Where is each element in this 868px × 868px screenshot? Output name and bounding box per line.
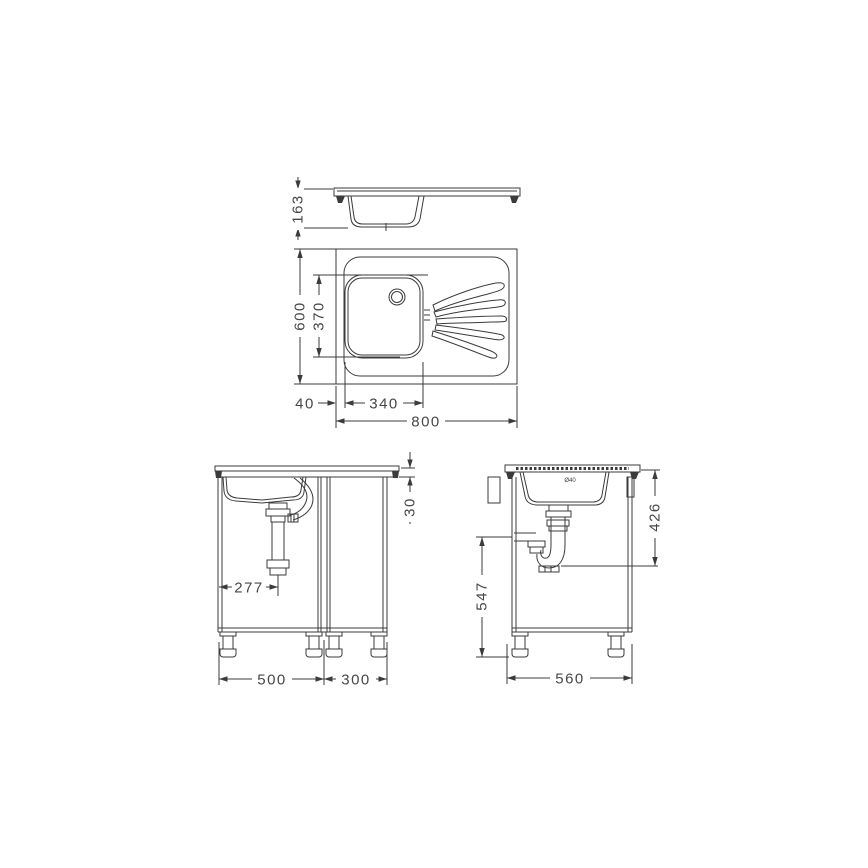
bowl-section-outer <box>223 477 306 503</box>
arrowhead <box>652 470 657 479</box>
drain-body <box>271 516 285 522</box>
dim-outlet-height: 547 <box>473 537 512 657</box>
dim-label-40: 40 <box>295 395 315 412</box>
dim-cabinet-widths: 500 300 <box>219 640 387 688</box>
dim-lines <box>318 362 345 428</box>
dim-label-300: 300 <box>341 671 371 688</box>
elbow-nut <box>528 541 545 547</box>
dim-worktop-edge: 30 <box>399 452 418 524</box>
bowl-inner <box>348 278 420 355</box>
dim-label-800: 800 <box>411 413 441 430</box>
waste-arm <box>514 533 536 541</box>
dim-bowl-depth: 370 <box>310 275 428 357</box>
dim-label-277: 277 <box>234 579 264 596</box>
profile-view: 163 <box>289 177 520 240</box>
arrowhead <box>316 676 325 681</box>
sink-rim-profile <box>334 188 520 196</box>
arrowhead <box>316 275 321 284</box>
cabinet-walls <box>218 477 387 632</box>
cabinet-walls <box>512 477 632 632</box>
adjustable-foot <box>608 632 624 657</box>
adjustable-foot <box>306 632 322 657</box>
bowl-profile-inner <box>351 196 419 224</box>
dim-label-600: 600 <box>291 301 308 331</box>
bowl-section-outer <box>520 472 609 505</box>
bowl-mark-label: Ø40 <box>564 478 576 484</box>
front-view: 277 30 500 300 <box>215 452 418 688</box>
arrowhead <box>328 400 337 405</box>
rim-clip-right <box>510 196 519 203</box>
drawing-canvas: 163 600 <box>0 0 868 868</box>
dim-drain-offset: 277 <box>219 579 278 596</box>
dim-lines <box>561 470 660 566</box>
rim-clip-left <box>336 196 345 203</box>
arrowhead <box>297 375 302 384</box>
arrowhead <box>652 557 657 566</box>
bowl-section-inner <box>523 472 606 502</box>
back-bracket <box>488 477 500 503</box>
arrowhead <box>297 249 302 258</box>
arrowhead <box>219 584 228 589</box>
plan-view: 600 370 40 340 <box>291 249 517 430</box>
arrowhead <box>324 676 333 681</box>
bowl-section-inner <box>226 477 303 500</box>
drainboard-rib <box>436 316 506 324</box>
drain-nut <box>266 509 290 516</box>
arrowhead <box>407 460 412 469</box>
drainboard-rib <box>435 325 504 340</box>
drain-hole-inner <box>392 292 403 303</box>
dim-bowl-height: 163 <box>289 177 348 240</box>
drainboard-rib <box>433 283 504 311</box>
adjustable-foot <box>220 632 236 657</box>
coupling-nut <box>549 526 567 531</box>
adjustable-foot <box>326 632 342 657</box>
drain-assembly <box>514 505 571 572</box>
dim-drain-drop: 426 <box>561 470 663 566</box>
tailpipe <box>272 522 284 560</box>
arrowhead <box>270 584 279 589</box>
arrowhead <box>507 675 516 680</box>
trap-cap-threads <box>545 566 551 572</box>
dim-label-547: 547 <box>473 581 490 611</box>
bowl-profile-outer <box>348 196 424 227</box>
arrowhead <box>295 181 300 190</box>
dim-label-500: 500 <box>257 671 287 688</box>
bowl-outer <box>345 275 423 358</box>
arrowhead <box>345 400 354 405</box>
drain-flange <box>269 503 287 509</box>
coupling-nut <box>270 568 286 575</box>
arrowhead <box>479 537 484 546</box>
side-view: Ø40 <box>473 465 663 687</box>
drain-nut <box>546 511 571 517</box>
dim-overall-width: 800 <box>336 386 517 430</box>
dim-label-426: 426 <box>646 502 663 532</box>
arrowhead <box>407 477 412 486</box>
arrowhead <box>624 675 633 680</box>
dim-label-340: 340 <box>369 395 399 412</box>
arrowhead <box>479 648 484 657</box>
dim-label-163: 163 <box>289 194 306 224</box>
dim-label-370: 370 <box>310 301 327 331</box>
arrowhead <box>219 676 228 681</box>
arrowhead <box>415 400 424 405</box>
dim-cabinet-depth: 560 <box>507 644 632 687</box>
adjustable-foot <box>371 632 387 657</box>
coupling-nut <box>267 560 289 568</box>
dim-label-560: 560 <box>555 670 585 687</box>
dim-lines <box>313 275 428 357</box>
dim-label-30: 30 <box>401 497 418 517</box>
drain-flange <box>549 505 568 511</box>
rib-neck-dashes <box>424 310 430 320</box>
arrowhead <box>316 348 321 357</box>
arrowhead <box>379 676 388 681</box>
drain-assembly <box>266 478 313 596</box>
arrowhead <box>509 418 518 423</box>
coupling-nut <box>547 520 569 526</box>
dim-bowl-width: 340 <box>345 362 423 412</box>
adjustable-foot <box>512 632 528 657</box>
dim-bowl-offset: 40 <box>295 362 345 428</box>
drainboard-rib <box>434 300 505 317</box>
arrowhead <box>336 418 345 423</box>
technical-drawing: 163 600 <box>0 0 868 868</box>
worktop-rail <box>215 466 399 477</box>
